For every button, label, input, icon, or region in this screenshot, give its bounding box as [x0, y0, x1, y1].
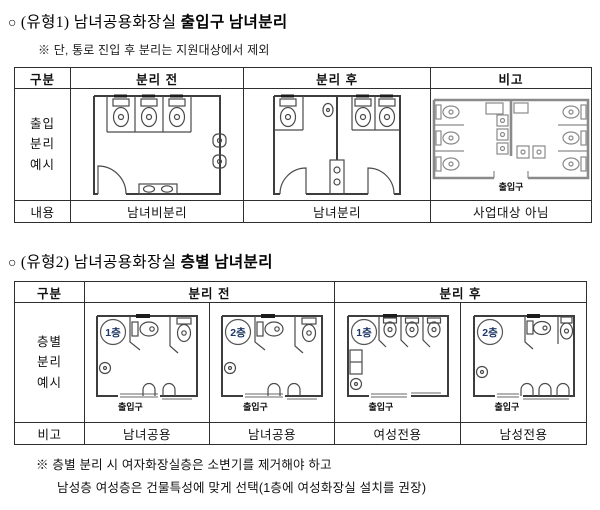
- table2-rowlabel-floor-example: 층별 분리 예시: [15, 303, 85, 423]
- table-entrance-separation: 구분 분리 전 분리 후 비고 출입 분리 예시: [14, 67, 592, 223]
- table2-value-floor2-before: 남녀공용: [210, 423, 335, 445]
- table1-diagram-row: 출입 분리 예시: [15, 89, 592, 201]
- sink-icon: [225, 363, 236, 374]
- entrance-threshold: [120, 394, 158, 397]
- entrance-label: 출입구: [92, 403, 202, 413]
- section1-title-bold: 출입구 남녀분리: [181, 14, 288, 31]
- floor-badge-label: 1층: [356, 326, 372, 339]
- entrance-gap: [494, 171, 528, 178]
- floorplan-cell-before-floor2: 2층: [210, 303, 335, 423]
- table2-rowlabel-remark: 비고: [15, 423, 85, 445]
- table1-header-row: 구분 분리 전 분리 후 비고: [15, 68, 592, 89]
- center-sink-unit: [330, 160, 344, 194]
- table-floor-separation: 구분 분리 전 분리 후 층별 분리 예시 1층: [14, 281, 587, 445]
- floorplan-wrap: 1층 출입구: [343, 312, 453, 413]
- section2-title-prefix: (유형2) 남녀공용화장실: [21, 254, 181, 271]
- entrance-threshold: [497, 394, 519, 397]
- toilet-icon: [113, 99, 185, 127]
- entrance-threshold: [245, 394, 283, 397]
- sink-icon: [100, 363, 111, 374]
- floorplan-wrap: 1층: [92, 312, 202, 413]
- left-stall-partition: [274, 96, 303, 130]
- floorplan-floor1-before: 1층: [92, 312, 202, 402]
- toilet-icon: [257, 322, 283, 336]
- table1-rowlabel-content: 내용: [15, 201, 71, 223]
- floorplan-cell-before-floor1: 1층: [85, 303, 210, 423]
- urinal-icon: [323, 103, 333, 116]
- table2-value-floor2-after: 남성전용: [461, 423, 587, 445]
- table2-diagram-row: 층별 분리 예시 1층: [15, 303, 587, 423]
- table1-value-after: 남녀분리: [244, 201, 431, 223]
- toilet-icon: [132, 322, 158, 336]
- bullet-circle-icon: ○: [8, 16, 17, 31]
- toilet-icon: [302, 318, 316, 342]
- table2-header-row: 구분 분리 전 분리 후: [15, 282, 587, 303]
- sink-counter-icon: [139, 184, 177, 194]
- entrance-label: 출입구: [431, 183, 591, 193]
- toilet-icon: [280, 99, 296, 127]
- utility-closet: [350, 350, 362, 374]
- floor-badge-label: 1층: [105, 326, 121, 339]
- sink-counter-icon: [486, 103, 503, 114]
- footnote-line2: 남성층 여성층은 건물특성에 맞게 선택(1층에 여성화장실 설치를 권장): [57, 477, 592, 500]
- toilet-icon: [177, 318, 191, 342]
- floorplan-floor2-before: 2층: [217, 312, 327, 402]
- door-arc: [98, 166, 126, 194]
- floorplan-cell-after-floor1: 1층 출입구: [335, 303, 461, 423]
- table2-header-after: 분리 후: [335, 282, 587, 303]
- floorplan-wrap: 2층: [469, 312, 579, 413]
- entrance-label: 출입구: [343, 403, 453, 413]
- table1-value-remark: 사업대상 아님: [430, 201, 591, 223]
- floorplan-unseparated: [87, 93, 227, 197]
- door-arc: [280, 168, 306, 194]
- floor-badge-label: 2층: [230, 326, 246, 339]
- floorplan-cell-before: [71, 89, 244, 201]
- floorplan-cell-after: [244, 89, 431, 201]
- door-arc: [368, 168, 394, 194]
- outer-walls: [94, 96, 220, 194]
- document-page: ○(유형1) 남녀공용화장실 출입구 남녀분리 ※ 단, 통로 진입 후 분리는…: [0, 0, 600, 500]
- table1-header-before: 분리 전: [71, 68, 244, 89]
- floorplan-wrap: 2층: [217, 312, 327, 413]
- sink-icon: [476, 367, 487, 378]
- floorplan-separated: [267, 93, 407, 197]
- entrance-label: 출입구: [217, 403, 327, 413]
- toilet-icon: [560, 317, 572, 339]
- toilet-icon: [383, 318, 440, 337]
- floorplan-floor1-after: 1층: [343, 312, 453, 402]
- floorplan-corridor-separated: [431, 96, 591, 182]
- table1-header-after: 분리 후: [244, 68, 431, 89]
- sink-counter-icon: [514, 103, 528, 113]
- floorplan-corridor-wrap: 출입구: [431, 96, 591, 193]
- section1-title: ○(유형1) 남녀공용화장실 출입구 남녀분리: [8, 10, 592, 32]
- table2-value-floor1-after: 여성전용: [335, 423, 461, 445]
- table2-header-gubun: 구분: [15, 282, 85, 303]
- footnote-line1: ※ 층별 분리 시 여자화장실층은 소변기를 제거해야 하고: [36, 454, 592, 477]
- table2-header-before: 분리 전: [85, 282, 335, 303]
- bullet-circle-icon: ○: [8, 256, 17, 271]
- floorplan-cell-remark: 출입구: [430, 89, 591, 201]
- section2-title-bold: 층별 남녀분리: [181, 254, 273, 271]
- table1-rowlabel-entrance-example: 출입 분리 예시: [15, 89, 71, 201]
- floorplan-cell-after-floor2: 2층: [461, 303, 587, 423]
- floor-badge-label: 2층: [482, 326, 498, 339]
- stall-partitions: [379, 316, 430, 347]
- table2-value-floor1-before: 남녀공용: [85, 423, 210, 445]
- section1-note: ※ 단, 통로 진입 후 분리는 지원대상에서 제외: [38, 41, 592, 58]
- section2-title: ○(유형2) 남녀공용화장실 층별 남녀분리: [8, 250, 592, 272]
- table1-header-remark: 비고: [430, 68, 591, 89]
- urinal-icon: [521, 384, 569, 397]
- table1-content-row: 내용 남녀비분리 남녀분리 사업대상 아님: [15, 201, 592, 223]
- urinal-icon: [497, 115, 545, 158]
- table2-remark-row: 비고 남녀공용 남녀공용 여성전용 남성전용: [15, 423, 587, 445]
- section1-title-prefix: (유형1) 남녀공용화장실: [21, 14, 181, 31]
- footnote: ※ 층별 분리 시 여자화장실층은 소변기를 제거해야 하고 남성층 여성층은 …: [36, 454, 592, 500]
- table1-value-before: 남녀비분리: [71, 201, 244, 223]
- sink-icon: [350, 379, 361, 390]
- entrance-label: 출입구: [469, 403, 579, 413]
- floorplan-floor2-after: 2층: [469, 312, 579, 402]
- table1-header-gubun: 구분: [15, 68, 71, 89]
- toilet-icon: [527, 321, 551, 335]
